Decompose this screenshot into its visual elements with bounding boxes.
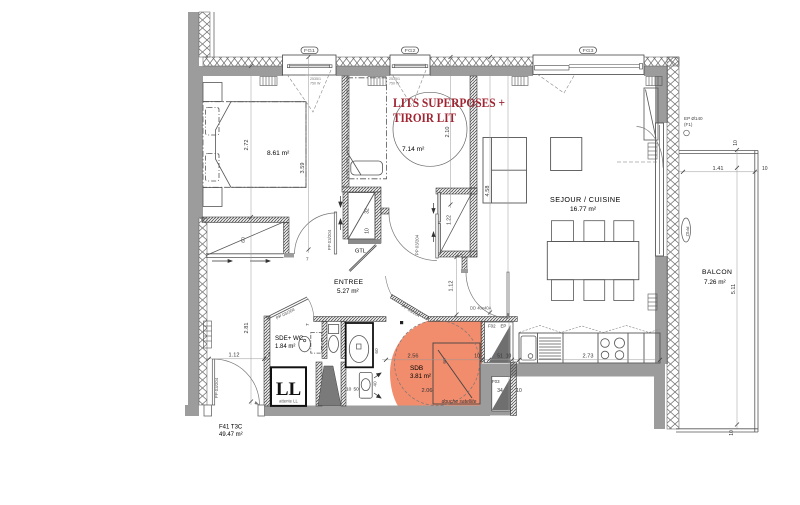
svg-text:F41 T3C: F41 T3C — [219, 425, 243, 431]
svg-text:16.77 m²: 16.77 m² — [570, 206, 597, 213]
svg-text:1.84 m²: 1.84 m² — [275, 344, 295, 350]
svg-text:5.11: 5.11 — [731, 284, 737, 294]
svg-text:2.56: 2.56 — [408, 353, 419, 359]
svg-text:1.12: 1.12 — [449, 281, 455, 292]
svg-text:49.47 m²: 49.47 m² — [219, 432, 243, 438]
svg-text:4.58: 4.58 — [485, 186, 491, 197]
svg-text:2.72: 2.72 — [244, 140, 250, 151]
svg-text:7.26 m²: 7.26 m² — [704, 279, 726, 286]
svg-text:(F1): (F1) — [684, 122, 693, 127]
svg-text:DD 40x40A: DD 40x40A — [470, 306, 492, 311]
svg-text:1.41: 1.41 — [713, 166, 724, 172]
svg-text:LITS SUPERPOSES +: LITS SUPERPOSES + — [393, 96, 505, 110]
svg-text:10: 10 — [729, 430, 735, 436]
svg-text:ENTREE: ENTREE — [334, 279, 364, 286]
svg-text:8.61 m²: 8.61 m² — [267, 150, 290, 157]
svg-text:7: 7 — [268, 353, 271, 359]
svg-text:10: 10 — [506, 353, 512, 359]
svg-text:7: 7 — [459, 253, 464, 256]
svg-text:1.12: 1.12 — [229, 353, 240, 359]
svg-text:2.73: 2.73 — [583, 353, 594, 359]
svg-text:FG3: FG3 — [583, 48, 595, 53]
svg-text:2.06: 2.06 — [422, 388, 433, 394]
svg-text:60: 60 — [241, 237, 247, 243]
svg-text:douche satellite: douche satellite — [442, 399, 477, 405]
svg-text:TIROIR LIT: TIROIR LIT — [393, 111, 457, 125]
svg-text:34: 34 — [497, 388, 503, 394]
svg-text:750 W: 750 W — [389, 82, 400, 86]
svg-text:GTL: GTL — [355, 249, 366, 255]
svg-text:EP: EP — [501, 324, 507, 329]
svg-text:BALCON: BALCON — [702, 269, 732, 276]
svg-text:40: 40 — [373, 381, 379, 387]
svg-text:SDE+ WC: SDE+ WC — [275, 335, 304, 342]
svg-text:2535/1: 2535/1 — [310, 77, 321, 81]
svg-text:3.81 m²: 3.81 m² — [410, 373, 431, 380]
svg-text:10: 10 — [474, 353, 480, 359]
svg-text:3.59: 3.59 — [300, 163, 306, 174]
svg-text:2535/1: 2535/1 — [389, 77, 400, 81]
svg-text:PF02: PF02 — [685, 226, 690, 237]
svg-text:7: 7 — [305, 323, 310, 326]
svg-text:attente LL: attente LL — [279, 399, 298, 404]
svg-text:32: 32 — [365, 208, 371, 214]
svg-text:SDB: SDB — [410, 365, 423, 372]
svg-text:2.81: 2.81 — [244, 323, 250, 334]
svg-text:1.22: 1.22 — [447, 215, 453, 225]
svg-text:10: 10 — [365, 228, 371, 234]
svg-text:60: 60 — [442, 358, 448, 364]
svg-text:7: 7 — [306, 257, 309, 262]
svg-text:750 W: 750 W — [310, 82, 321, 86]
svg-text:FG1: FG1 — [304, 48, 316, 53]
svg-text:7.14 m²: 7.14 m² — [402, 146, 425, 153]
svg-text:51: 51 — [497, 353, 503, 359]
svg-text:10: 10 — [516, 388, 522, 394]
svg-text:FG2: FG2 — [405, 48, 417, 53]
svg-text:10: 10 — [733, 140, 739, 146]
svg-text:10: 10 — [346, 387, 352, 393]
svg-text:2.10: 2.10 — [445, 127, 451, 138]
svg-text:5.27 m²: 5.27 m² — [337, 288, 359, 295]
svg-text:PP 03/204: PP 03/204 — [214, 377, 219, 398]
svg-text:F03: F03 — [492, 379, 500, 384]
svg-text:LL: LL — [276, 379, 301, 400]
svg-text:PP 03/204: PP 03/204 — [415, 234, 420, 255]
svg-text:SEJOUR / CUISINE: SEJOUR / CUISINE — [550, 195, 621, 204]
svg-text:60: 60 — [374, 348, 380, 354]
svg-text:EP Ø140: EP Ø140 — [684, 116, 703, 121]
svg-text:10: 10 — [762, 166, 768, 172]
svg-text:50: 50 — [354, 387, 360, 393]
svg-text:F02: F02 — [488, 324, 496, 329]
svg-text:PP 03/204: PP 03/204 — [327, 229, 332, 250]
